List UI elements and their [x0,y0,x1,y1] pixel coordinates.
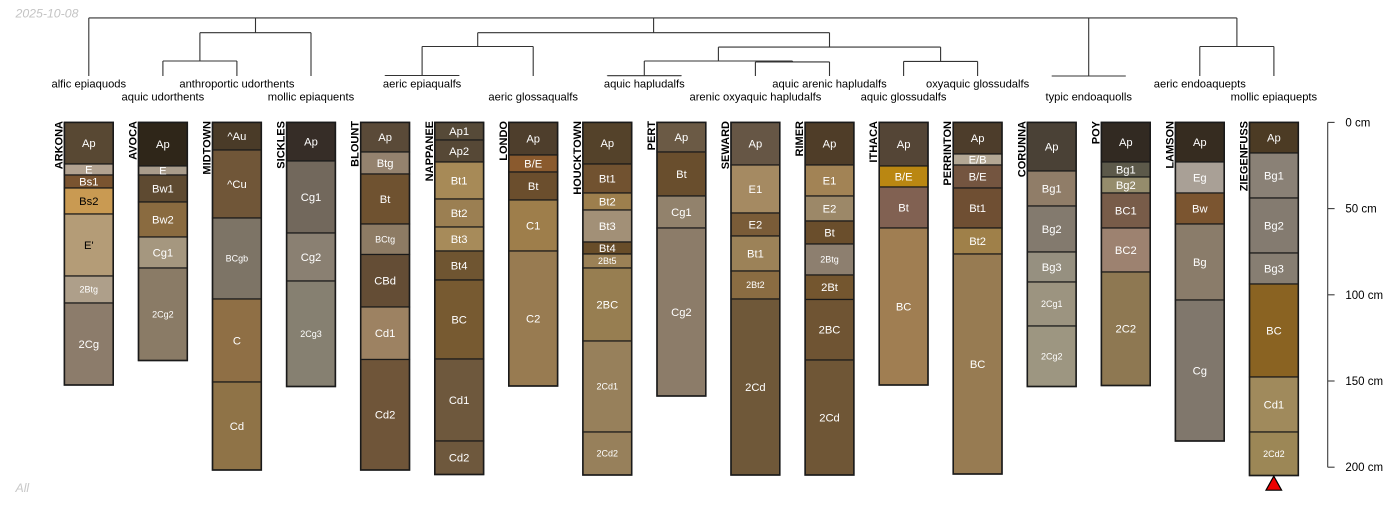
svg-text:BC: BC [896,301,912,313]
svg-text:BC2: BC2 [1115,245,1137,257]
svg-text:2Cg: 2Cg [79,339,100,351]
svg-text:aquic hapludalfs: aquic hapludalfs [604,78,685,90]
svg-text:MIDTOWN: MIDTOWN [202,121,214,175]
svg-text:ARKONA: ARKONA [53,121,65,169]
svg-text:Bt: Bt [528,181,539,193]
svg-text:Ap: Ap [1045,142,1059,154]
svg-text:C2: C2 [526,313,540,325]
svg-text:Cg1: Cg1 [301,192,322,204]
svg-text:Ap: Ap [1193,137,1207,149]
svg-text:^Cu: ^Cu [227,179,247,191]
svg-text:E2: E2 [749,219,763,231]
svg-text:Ap2: Ap2 [449,146,469,158]
svg-text:Cd1: Cd1 [375,328,396,340]
svg-text:B/E: B/E [524,158,542,170]
svg-text:Bt: Bt [898,202,909,214]
svg-text:2Cg2: 2Cg2 [1041,351,1063,361]
svg-text:2Cd: 2Cd [745,382,766,394]
svg-text:B/E: B/E [969,171,987,183]
svg-text:2Cd2: 2Cd2 [1263,449,1285,459]
svg-text:Cg: Cg [1193,365,1207,377]
svg-text:Bt3: Bt3 [451,234,468,246]
svg-text:BCtg: BCtg [375,234,395,244]
svg-text:2Btg: 2Btg [80,285,99,295]
svg-text:Cg2: Cg2 [671,307,692,319]
svg-text:Ap: Ap [600,138,614,150]
svg-text:CBd: CBd [374,276,396,288]
svg-text:Bg2: Bg2 [1264,220,1284,232]
svg-text:Bt2: Bt2 [969,236,986,248]
svg-text:Ap: Ap [823,139,837,151]
svg-text:PERT: PERT [646,121,658,151]
svg-text:SEWARD: SEWARD [720,121,732,169]
svg-text:E': E' [84,240,94,252]
svg-text:mollic epiaquents: mollic epiaquents [268,91,355,103]
svg-text:Ap: Ap [897,139,911,151]
svg-text:Ap: Ap [82,138,96,150]
svg-text:Bt1: Bt1 [599,173,616,185]
svg-text:Cg2: Cg2 [301,252,322,264]
svg-text:Ap: Ap [526,134,540,146]
svg-text:Bg2: Bg2 [1116,180,1136,192]
svg-text:mollic epiaquepts: mollic epiaquepts [1231,91,1318,103]
svg-text:LONDO: LONDO [498,121,510,161]
svg-text:2Cd1: 2Cd1 [597,382,619,392]
svg-text:2Cg2: 2Cg2 [152,309,174,319]
svg-text:2Bt2: 2Bt2 [746,280,765,290]
svg-text:arenic oxyaquic hapludalfs: arenic oxyaquic hapludalfs [689,91,821,103]
svg-text:100 cm: 100 cm [1345,290,1383,302]
svg-text:Cd2: Cd2 [449,453,470,465]
svg-text:Bt1: Bt1 [747,248,764,260]
svg-text:Bt1: Bt1 [451,175,468,187]
svg-text:2025-10-08: 2025-10-08 [15,6,79,20]
svg-text:Bg3: Bg3 [1042,262,1062,274]
svg-text:B/E: B/E [895,171,913,183]
svg-text:2Cg1: 2Cg1 [1041,299,1063,309]
svg-text:aeric epiaqualfs: aeric epiaqualfs [383,78,462,90]
svg-text:Ap: Ap [156,139,170,151]
svg-text:BC: BC [970,359,986,371]
svg-text:aquic udorthents: aquic udorthents [122,91,205,103]
svg-text:2Cd: 2Cd [819,412,840,424]
svg-text:Bs2: Bs2 [79,196,98,208]
svg-text:Cd1: Cd1 [449,395,470,407]
svg-text:CORUNNA: CORUNNA [1016,121,1028,177]
svg-text:Bg1: Bg1 [1264,170,1284,182]
svg-text:All: All [15,481,31,495]
svg-text:Bs1: Bs1 [79,176,98,188]
svg-text:typic endoaquolls: typic endoaquolls [1045,91,1132,103]
svg-text:ZIEGENFUSS: ZIEGENFUSS [1239,121,1251,191]
svg-text:BLOUNT: BLOUNT [350,121,362,167]
svg-text:Bt: Bt [824,227,835,239]
svg-text:alfic epiaquods: alfic epiaquods [51,78,126,90]
svg-text:2Bt5: 2Bt5 [598,256,617,266]
svg-text:SICKLES: SICKLES [276,121,288,169]
svg-text:RIMER: RIMER [794,121,806,157]
svg-text:Bt: Bt [380,194,391,206]
svg-text:AVOCA: AVOCA [128,121,140,160]
svg-text:aquic arenic hapludalfs: aquic arenic hapludalfs [772,78,887,90]
svg-text:2BC: 2BC [819,325,841,337]
svg-text:2Btg: 2Btg [820,255,839,265]
svg-text:Ap1: Ap1 [449,126,469,138]
svg-text:Ap: Ap [1267,133,1281,145]
svg-text:Bg1: Bg1 [1116,164,1136,176]
svg-text:C: C [233,335,241,347]
svg-text:BC1: BC1 [1115,205,1137,217]
svg-text:Bw1: Bw1 [152,183,174,195]
svg-text:Bt3: Bt3 [599,221,616,233]
svg-text:Bw2: Bw2 [152,214,174,226]
svg-text:Ap: Ap [749,139,763,151]
svg-text:Bg2: Bg2 [1042,224,1062,236]
svg-text:Bt4: Bt4 [451,260,468,272]
svg-text:C1: C1 [526,220,540,232]
svg-text:E2: E2 [823,203,837,215]
svg-text:Cg1: Cg1 [671,207,692,219]
svg-text:Ap: Ap [971,133,985,145]
svg-text:E1: E1 [749,184,763,196]
svg-text:2C2: 2C2 [1116,324,1137,336]
svg-text:BCgb: BCgb [226,254,249,264]
svg-text:BC: BC [451,314,467,326]
svg-text:50 cm: 50 cm [1345,204,1376,216]
svg-text:Bw: Bw [1192,203,1208,215]
svg-text:Btg: Btg [377,158,394,170]
svg-text:0 cm: 0 cm [1345,117,1370,129]
svg-text:LAMSON: LAMSON [1164,121,1176,169]
svg-text:Bg1: Bg1 [1042,183,1062,195]
svg-text:aquic glossudalfs: aquic glossudalfs [861,91,947,103]
svg-text:2Cd2: 2Cd2 [597,449,619,459]
svg-text:2Bt: 2Bt [821,282,839,294]
svg-text:Cd2: Cd2 [375,410,396,422]
svg-text:Bt4: Bt4 [599,243,616,255]
svg-text:NAPPANEE: NAPPANEE [424,121,436,181]
svg-text:Cd: Cd [230,421,244,433]
svg-text:BC: BC [1266,325,1282,337]
svg-text:Bt1: Bt1 [969,203,986,215]
svg-text:Bg3: Bg3 [1264,263,1284,275]
svg-text:Bt2: Bt2 [599,196,616,208]
svg-text:200 cm: 200 cm [1345,462,1383,474]
svg-text:Cd1: Cd1 [1264,399,1285,411]
svg-text:HOUCKTOWN: HOUCKTOWN [572,121,584,195]
svg-text:2Cg3: 2Cg3 [300,329,322,339]
svg-text:Bt: Bt [676,169,687,181]
svg-text:oxyaquic glossudalfs: oxyaquic glossudalfs [926,78,1030,90]
svg-text:aeric endoaquepts: aeric endoaquepts [1154,78,1246,90]
svg-text:Ap: Ap [1119,137,1133,149]
svg-text:POY: POY [1090,120,1102,144]
svg-text:Bt2: Bt2 [451,208,468,220]
svg-text:2BC: 2BC [596,299,618,311]
svg-text:E1: E1 [823,175,837,187]
svg-text:anthroportic udorthents: anthroportic udorthents [179,78,294,90]
svg-text:Ap: Ap [304,137,318,149]
svg-text:PERRINTON: PERRINTON [942,121,954,186]
svg-text:^Au: ^Au [227,131,246,143]
svg-text:150 cm: 150 cm [1345,376,1383,388]
svg-text:Cg1: Cg1 [153,247,174,259]
svg-text:aeric glossaqualfs: aeric glossaqualfs [488,91,578,103]
svg-text:ITHACA: ITHACA [868,121,880,163]
svg-text:Bg: Bg [1193,257,1207,269]
svg-text:Eg: Eg [1193,172,1207,184]
svg-text:Ap: Ap [675,132,689,144]
svg-text:Ap: Ap [378,132,392,144]
